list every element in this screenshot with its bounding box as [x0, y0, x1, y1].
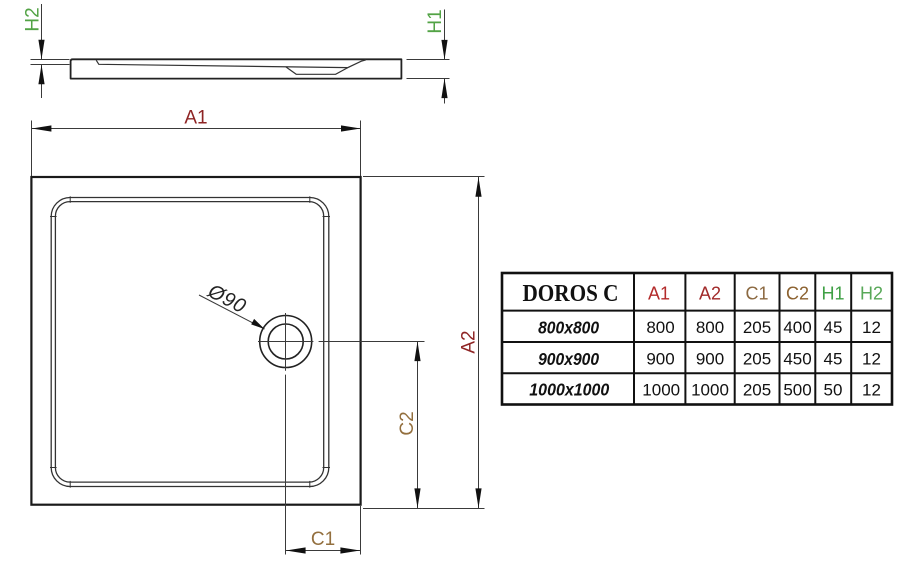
svg-text:900x900: 900x900: [538, 349, 599, 369]
svg-text:C1: C1: [311, 529, 335, 550]
svg-text:450: 450: [783, 350, 811, 369]
svg-text:400: 400: [783, 318, 811, 337]
svg-text:H2: H2: [860, 284, 883, 304]
svg-text:1000: 1000: [691, 381, 729, 400]
svg-text:A1: A1: [648, 284, 670, 304]
svg-text:800x800: 800x800: [538, 318, 599, 338]
svg-text:A1: A1: [184, 108, 207, 129]
svg-text:H2: H2: [23, 7, 44, 31]
svg-text:45: 45: [824, 318, 843, 337]
svg-text:Ø90: Ø90: [203, 280, 249, 318]
svg-text:45: 45: [824, 350, 843, 369]
svg-text:800: 800: [646, 318, 674, 337]
svg-text:A2: A2: [699, 284, 721, 304]
svg-text:50: 50: [824, 381, 843, 400]
svg-text:205: 205: [743, 350, 771, 369]
svg-text:12: 12: [862, 350, 881, 369]
svg-text:205: 205: [743, 318, 771, 337]
svg-text:900: 900: [696, 350, 724, 369]
svg-text:12: 12: [862, 381, 881, 400]
svg-text:1000x1000: 1000x1000: [529, 380, 609, 400]
svg-text:12: 12: [862, 318, 881, 337]
svg-text:H1: H1: [821, 284, 844, 304]
svg-text:C2: C2: [786, 284, 809, 304]
svg-text:A2: A2: [459, 330, 480, 353]
svg-text:DOROS C: DOROS C: [523, 281, 619, 307]
svg-text:C2: C2: [397, 411, 418, 435]
svg-text:500: 500: [783, 381, 811, 400]
svg-text:205: 205: [743, 381, 771, 400]
svg-text:C1: C1: [745, 284, 768, 304]
svg-text:H1: H1: [425, 9, 446, 33]
svg-text:800: 800: [696, 318, 724, 337]
svg-text:900: 900: [646, 350, 674, 369]
svg-text:1000: 1000: [642, 381, 680, 400]
